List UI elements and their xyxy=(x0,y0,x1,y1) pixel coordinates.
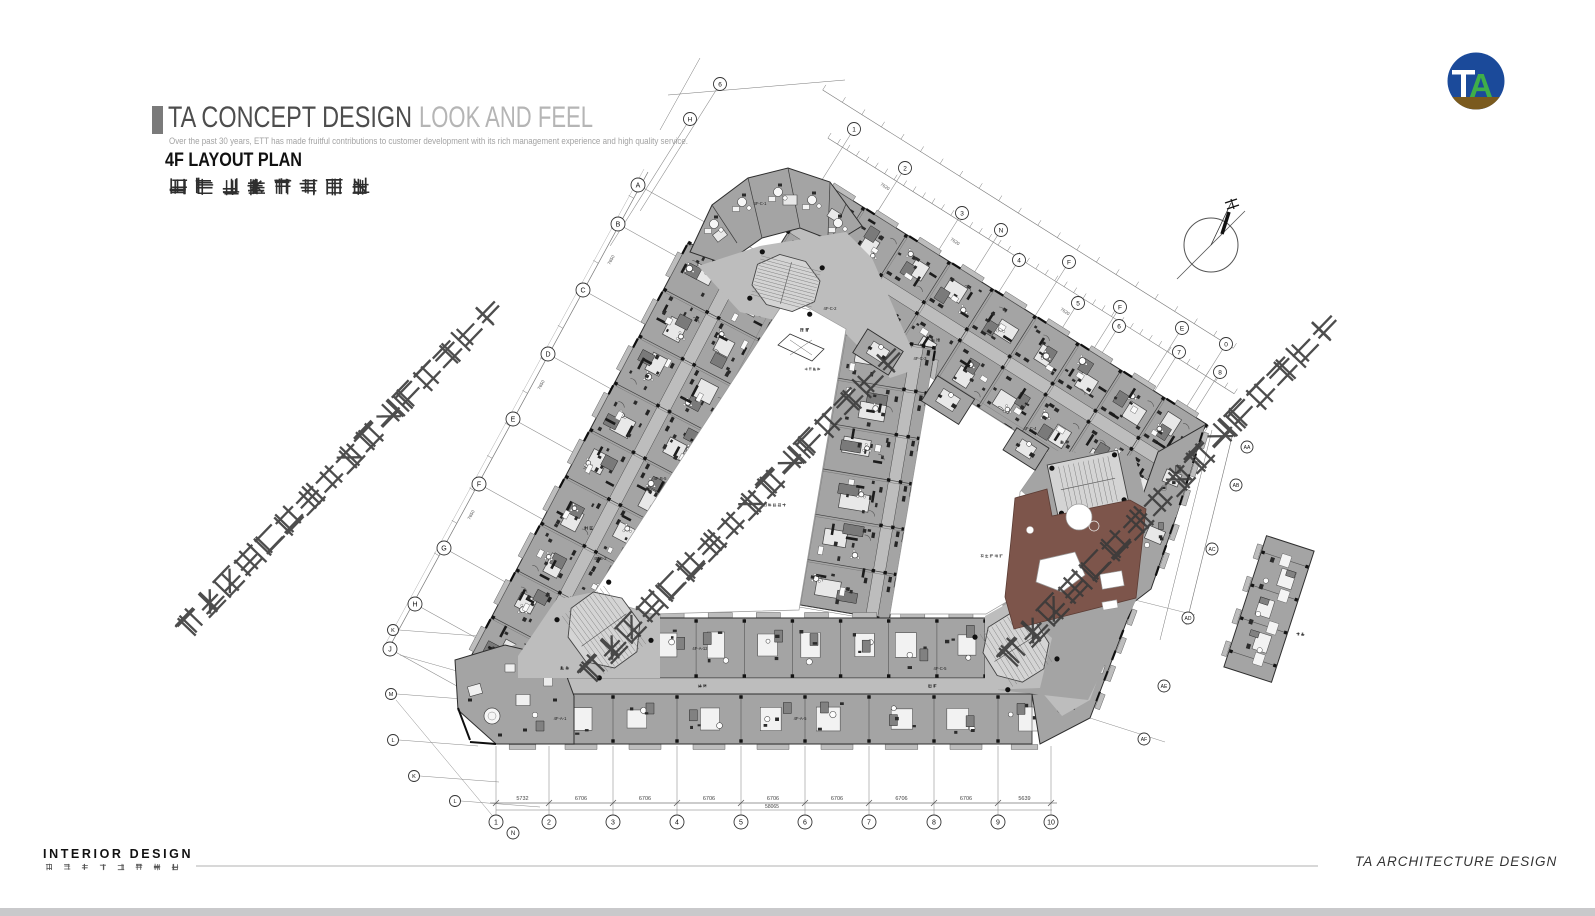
svg-text:8: 8 xyxy=(932,820,936,827)
svg-text:N: N xyxy=(999,227,1004,234)
svg-text:6706: 6706 xyxy=(639,796,651,802)
svg-text:H: H xyxy=(688,116,693,123)
svg-text:6706: 6706 xyxy=(831,796,843,802)
svg-text:J: J xyxy=(388,647,392,654)
svg-text:5732: 5732 xyxy=(516,796,528,802)
svg-text:4F-C-3: 4F-C-3 xyxy=(913,356,927,361)
svg-text:4F-C-4: 4F-C-4 xyxy=(1023,426,1037,431)
svg-text:10: 10 xyxy=(1047,820,1055,827)
svg-text:4F-C-5: 4F-C-5 xyxy=(933,666,947,671)
svg-text:6706: 6706 xyxy=(703,796,715,802)
svg-text:2: 2 xyxy=(547,820,551,827)
svg-text:K: K xyxy=(412,774,416,780)
svg-text:7: 7 xyxy=(1177,349,1181,356)
svg-text:AA: AA xyxy=(1244,445,1251,451)
svg-text:6: 6 xyxy=(718,81,722,88)
svg-text:4F-A-5: 4F-A-5 xyxy=(794,716,807,721)
svg-text:1: 1 xyxy=(852,126,856,133)
svg-text:E: E xyxy=(511,417,516,424)
svg-text:G: G xyxy=(441,546,446,553)
svg-text:LOOK AND FEEL: LOOK AND FEEL xyxy=(419,101,593,134)
svg-text:AF: AF xyxy=(1141,737,1147,743)
svg-text:A: A xyxy=(636,183,641,190)
svg-text:2: 2 xyxy=(903,165,907,172)
svg-text:C: C xyxy=(580,288,585,295)
svg-text:AE: AE xyxy=(1161,684,1168,690)
svg-text:6706: 6706 xyxy=(575,796,587,802)
svg-text:INTERIOR DESIGN: INTERIOR DESIGN xyxy=(43,847,193,861)
svg-text:6706: 6706 xyxy=(767,796,779,802)
svg-text:7: 7 xyxy=(867,820,871,827)
svg-text:4: 4 xyxy=(1017,257,1021,264)
svg-text:4F-A-12: 4F-A-12 xyxy=(692,646,708,651)
svg-text:6706: 6706 xyxy=(895,796,907,802)
svg-text:K: K xyxy=(391,628,395,634)
svg-text:M: M xyxy=(389,692,394,698)
svg-text:4F-C-1: 4F-C-1 xyxy=(753,201,767,206)
svg-text:4F-B-5: 4F-B-5 xyxy=(654,476,667,481)
svg-text:5: 5 xyxy=(739,820,743,827)
svg-text:5639: 5639 xyxy=(1018,796,1030,802)
svg-text:D: D xyxy=(545,352,550,359)
svg-text:TA ARCHITECTURE DESIGN: TA ARCHITECTURE DESIGN xyxy=(1355,854,1557,869)
svg-text:N: N xyxy=(511,831,515,837)
svg-text:L: L xyxy=(453,799,456,805)
svg-text:8: 8 xyxy=(1218,369,1222,376)
svg-text:AD: AD xyxy=(1185,616,1192,622)
svg-text:4F-B-3: 4F-B-3 xyxy=(594,556,607,561)
svg-text:5: 5 xyxy=(1076,300,1080,307)
svg-text:6: 6 xyxy=(1117,323,1121,330)
svg-text:B: B xyxy=(616,222,621,229)
svg-text:AB: AB xyxy=(1233,483,1240,489)
svg-text:E: E xyxy=(1180,325,1185,332)
svg-text:TA CONCEPT DESIGN: TA CONCEPT DESIGN xyxy=(168,101,412,134)
svg-text:1: 1 xyxy=(494,820,498,827)
svg-text:6: 6 xyxy=(803,820,807,827)
svg-text:A: A xyxy=(1469,67,1493,104)
svg-text:F: F xyxy=(1118,304,1122,311)
svg-text:4F LAYOUT PLAN: 4F LAYOUT PLAN xyxy=(165,150,302,171)
svg-text:L: L xyxy=(391,738,394,744)
svg-text:Over the past 30 years, ETT ha: Over the past 30 years, ETT has made fru… xyxy=(169,136,688,146)
svg-text:F: F xyxy=(477,482,481,489)
svg-text:AC: AC xyxy=(1209,547,1216,553)
svg-text:4: 4 xyxy=(675,820,679,827)
svg-text:H: H xyxy=(412,602,417,609)
svg-text:F: F xyxy=(1067,259,1071,266)
svg-text:4F-C-2: 4F-C-2 xyxy=(823,306,837,311)
svg-text:4F-A-1: 4F-A-1 xyxy=(554,716,567,721)
svg-text:6706: 6706 xyxy=(960,796,972,802)
svg-text:58065: 58065 xyxy=(765,804,779,810)
svg-text:3: 3 xyxy=(960,210,964,217)
svg-text:9: 9 xyxy=(996,820,1000,827)
svg-text:0: 0 xyxy=(1224,341,1228,348)
svg-text:3: 3 xyxy=(611,820,615,827)
